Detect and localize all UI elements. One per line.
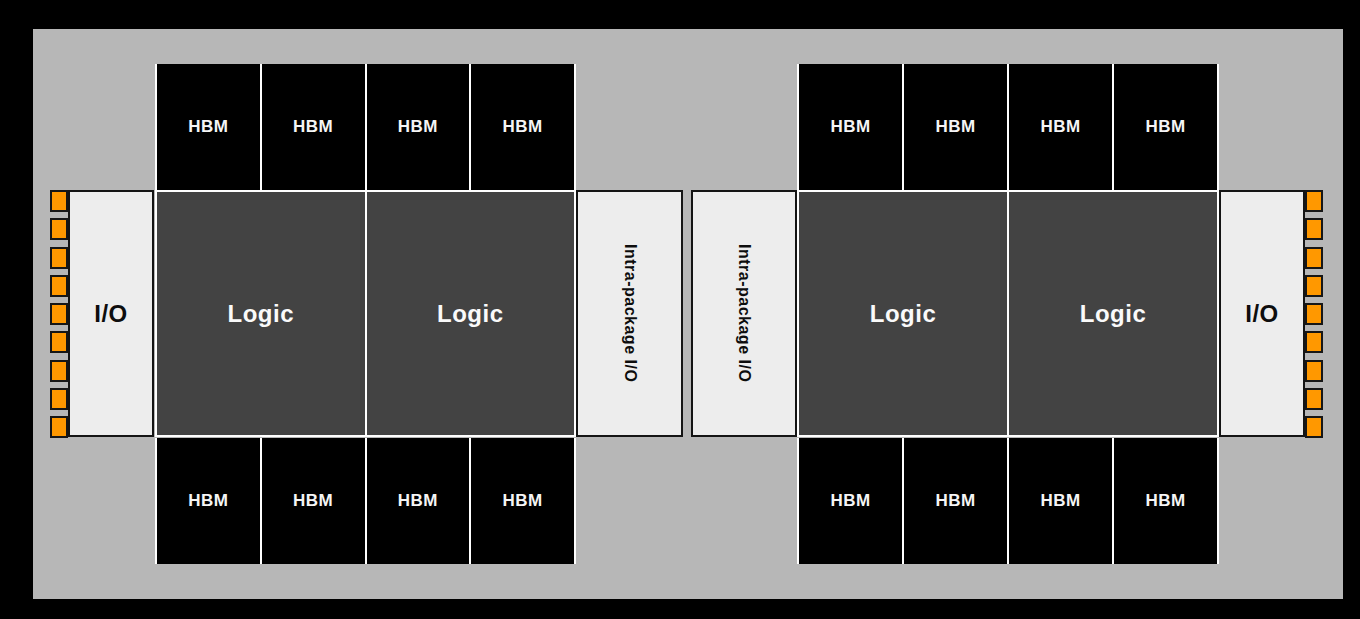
intra-package-io-label: Intra-package I/O — [735, 244, 753, 382]
io-pad — [1305, 360, 1323, 382]
hbm-label: HBM — [293, 491, 333, 511]
hbm-label: HBM — [830, 491, 870, 511]
hbm-label: HBM — [1040, 491, 1080, 511]
hbm-die: HBM — [1114, 438, 1217, 564]
hbm-die: HBM — [471, 64, 574, 190]
hbm-die: HBM — [471, 438, 574, 564]
intra-package-io-left: Intra-package I/O — [576, 190, 683, 437]
hbm-die: HBM — [1009, 64, 1112, 190]
package-substrate: I/O HBMHBMHBMHBM Logic Logic HBMHBMHBMHB… — [33, 29, 1343, 599]
hbm-die: HBM — [904, 64, 1007, 190]
logic-label: Logic — [228, 300, 295, 328]
logic-die: Logic — [367, 192, 575, 435]
logic-group-right: Logic Logic — [797, 190, 1219, 437]
hbm-row-top-left: HBMHBMHBMHBM — [155, 64, 576, 190]
logic-label: Logic — [870, 300, 937, 328]
io-label: I/O — [1245, 300, 1279, 328]
hbm-label: HBM — [398, 491, 438, 511]
hbm-die: HBM — [1114, 64, 1217, 190]
hbm-label: HBM — [398, 117, 438, 137]
io-pad — [1305, 275, 1323, 297]
hbm-die: HBM — [262, 438, 365, 564]
logic-die: Logic — [1009, 192, 1217, 435]
hbm-die: HBM — [799, 438, 902, 564]
logic-label: Logic — [1080, 300, 1147, 328]
hbm-die: HBM — [367, 64, 470, 190]
io-pad — [1305, 331, 1323, 353]
hbm-die: HBM — [904, 438, 1007, 564]
hbm-die: HBM — [262, 64, 365, 190]
hbm-label: HBM — [935, 491, 975, 511]
hbm-label: HBM — [503, 491, 543, 511]
io-die-right: I/O — [1219, 190, 1305, 437]
logic-die: Logic — [157, 192, 365, 435]
hbm-die: HBM — [157, 64, 260, 190]
io-pad — [50, 360, 68, 382]
io-pad — [1305, 247, 1323, 269]
io-pad — [1305, 190, 1323, 212]
io-pad — [50, 247, 68, 269]
hbm-label: HBM — [188, 117, 228, 137]
io-pad — [1305, 303, 1323, 325]
io-die-left: I/O — [68, 190, 154, 437]
hbm-row-top-right: HBMHBMHBMHBM — [797, 64, 1219, 190]
logic-group-left: Logic Logic — [155, 190, 576, 437]
hbm-label: HBM — [1145, 117, 1185, 137]
diagram-canvas: I/O HBMHBMHBMHBM Logic Logic HBMHBMHBMHB… — [0, 0, 1360, 619]
io-pad — [50, 388, 68, 410]
hbm-label: HBM — [188, 491, 228, 511]
hbm-die: HBM — [157, 438, 260, 564]
io-pad-column-right — [1305, 190, 1323, 438]
io-pad — [50, 275, 68, 297]
hbm-row-bottom-left: HBMHBMHBMHBM — [155, 438, 576, 564]
hbm-label: HBM — [293, 117, 333, 137]
io-pad — [50, 331, 68, 353]
hbm-label: HBM — [1145, 491, 1185, 511]
hbm-row-bottom-right: HBMHBMHBMHBM — [797, 438, 1219, 564]
io-pad — [50, 190, 68, 212]
io-pad — [50, 303, 68, 325]
hbm-die: HBM — [799, 64, 902, 190]
io-pad — [1305, 416, 1323, 438]
logic-label: Logic — [437, 300, 504, 328]
hbm-label: HBM — [503, 117, 543, 137]
hbm-die: HBM — [367, 438, 470, 564]
io-pad — [50, 218, 68, 240]
io-pad — [1305, 388, 1323, 410]
io-pad-column-left — [50, 190, 68, 438]
hbm-die: HBM — [1009, 438, 1112, 564]
io-pad — [50, 416, 68, 438]
intra-package-io-right: Intra-package I/O — [691, 190, 797, 437]
io-pad — [1305, 218, 1323, 240]
hbm-label: HBM — [1040, 117, 1080, 137]
hbm-label: HBM — [935, 117, 975, 137]
hbm-label: HBM — [830, 117, 870, 137]
logic-die: Logic — [799, 192, 1007, 435]
io-label: I/O — [94, 300, 128, 328]
intra-package-io-label: Intra-package I/O — [621, 244, 639, 382]
